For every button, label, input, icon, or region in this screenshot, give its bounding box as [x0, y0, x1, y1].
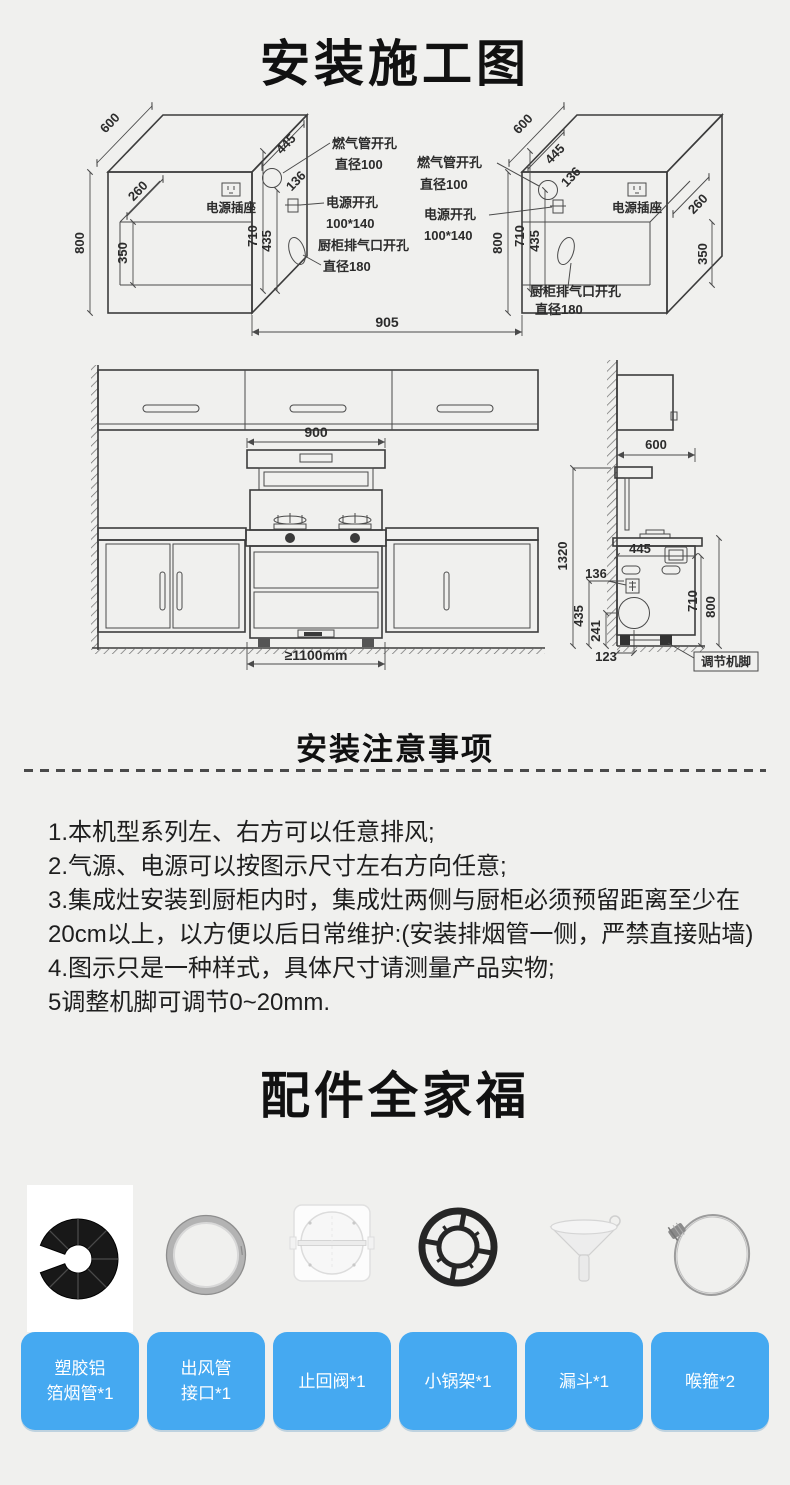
door-handle: [177, 572, 182, 610]
right-power-callout-2: 100*140: [424, 228, 472, 243]
side-upper-cabinet: [617, 375, 673, 430]
left-dim-435: 435: [259, 230, 274, 252]
check-valve-image: [273, 1185, 391, 1332]
side-dim-241: 241: [588, 620, 603, 642]
note-line-4: 20cm以上，以方便以后日常维护:(安装排烟管一侧，严禁直接贴墙): [48, 918, 760, 952]
side-burner: [640, 530, 670, 538]
right-dim-350: 350: [695, 243, 710, 265]
accessory-label-pot-rack: 小锅架*1: [399, 1332, 517, 1430]
accessory-label-funnel: 漏斗*1: [525, 1332, 643, 1430]
right-gas-callout-2: 直径100: [420, 177, 468, 192]
left-socket-icon: [222, 183, 240, 196]
right-exhaust-hole: [555, 235, 578, 266]
side-floor-hatch: [617, 646, 705, 652]
right-exhaust-callout-2: 直径180: [535, 302, 583, 317]
right-socket-icon: [628, 183, 646, 196]
pot-rack-image: [399, 1185, 517, 1332]
left-power-callout-1: 电源开孔: [326, 195, 378, 210]
right-gas-hole: [539, 181, 558, 200]
upper-cabinets: [98, 370, 538, 430]
side-dim-800: 800: [703, 596, 718, 618]
note-line-6: 5调整机脚可调节0~20mm.: [48, 986, 760, 1020]
min-width-value: ≥1100mm: [285, 647, 348, 663]
right-dim-260: 260: [685, 191, 711, 217]
right-dim-136: 136: [558, 164, 584, 190]
page-title: 安装施工图: [0, 24, 790, 96]
cabinet-handle: [143, 405, 199, 412]
cabinet-cutout-diagram: 600 800 260 350 710 435 445 136: [0, 95, 790, 345]
door-handle: [444, 572, 449, 610]
stove-foot: [258, 638, 270, 647]
right-cabinet-iso: 600 445 136 800 710 435 260 350: [417, 106, 722, 317]
right-gas-callout-1: 燃气管开孔: [417, 155, 482, 170]
accessory-label-line: 箔烟管*1: [46, 1381, 113, 1406]
side-exhaust-outlet: [619, 598, 650, 629]
adjustable-foot: [620, 635, 630, 645]
burner-right: [339, 513, 371, 529]
accessories-labels-row: 塑胶铝 箔烟管*1 出风管 接口*1 止回阀*1 小锅架*1 漏斗*1 喉箍*2: [0, 1332, 790, 1430]
side-dim-123: 123: [595, 649, 617, 664]
right-power-opening: [550, 200, 566, 213]
left-exhaust-hole: [286, 235, 309, 266]
front-elevation: 900: [91, 365, 545, 670]
control-knob: [350, 533, 360, 543]
right-power-callout-1: 电源开孔: [424, 207, 476, 222]
door-handle: [160, 572, 165, 610]
left-power-opening: [285, 199, 301, 212]
accessory-label-smoke-pipe: 塑胶铝 箔烟管*1: [21, 1332, 139, 1430]
side-dim-600: 600: [645, 437, 667, 452]
note-line-1: 1.本机型系列左、右方可以任意排风;: [48, 816, 760, 850]
left-gas-callout-1: 燃气管开孔: [332, 136, 397, 151]
control-knob: [285, 533, 295, 543]
left-gas-callout-2: 直径100: [335, 157, 383, 172]
left-dim-350: 350: [115, 242, 130, 264]
accessory-label-check-valve: 止回阀*1: [273, 1332, 391, 1430]
accessories-heading: 配件全家福: [0, 1056, 790, 1128]
note-line-3: 3.集成灶安装到厨柜内时，集成灶两侧与厨柜必须预留距离至少在: [48, 884, 760, 918]
smoke-pipe-image: [21, 1185, 139, 1332]
hose-clamp-image: [651, 1185, 769, 1332]
note-line-2: 2.气源、电源可以按图示尺寸左右方向任意;: [48, 850, 760, 884]
accessory-label-outlet-connector: 出风管 接口*1: [147, 1332, 265, 1430]
side-dim-710: 710: [685, 590, 700, 612]
foot-label-text: 调节机脚: [701, 654, 751, 669]
left-wall-hatch: [91, 365, 98, 650]
burner-left: [274, 513, 306, 529]
left-dim-260: 260: [125, 178, 151, 204]
left-dim-710: 710: [245, 225, 260, 247]
accessory-label-line: 止回阀*1: [298, 1369, 365, 1394]
base-cabinet-left: [98, 528, 246, 632]
accessory-label-line: 漏斗*1: [559, 1369, 609, 1394]
integrated-stove-front: [246, 450, 386, 647]
accessory-label-line: 接口*1: [181, 1381, 231, 1406]
right-exhaust-callout-1: 厨柜排气口开孔: [530, 284, 621, 299]
side-dim-445: 445: [629, 541, 651, 556]
stove-foot: [362, 638, 374, 647]
left-dim-800: 800: [72, 232, 87, 254]
cabinet-handle: [290, 405, 346, 412]
funnel-image: [525, 1185, 643, 1332]
dashed-divider: [24, 769, 766, 772]
right-dim-435: 435: [527, 230, 542, 252]
left-dim-445: 445: [273, 131, 299, 157]
side-hood: [615, 467, 652, 530]
accessory-label-line: 塑胶铝: [55, 1356, 106, 1381]
left-dim-136: 136: [283, 168, 309, 194]
right-dim-800: 800: [490, 232, 505, 254]
accessories-images-row: [0, 1185, 790, 1332]
accessory-label-hose-clamp: 喉箍*2: [651, 1332, 769, 1430]
accessory-label-line: 喉箍*2: [685, 1369, 735, 1394]
kitchen-elevation-diagram: 900: [0, 350, 790, 695]
right-dim-600: 600: [510, 111, 536, 137]
right-dim-445: 445: [542, 141, 568, 167]
niche-width-value: 905: [375, 314, 399, 330]
gas-inlet-block: [626, 579, 639, 593]
left-socket-label: 电源插座: [206, 200, 257, 215]
left-dim-600: 600: [97, 110, 123, 136]
left-cabinet-iso: 600 800 260 350 710 435 445 136: [72, 106, 409, 313]
right-socket-label: 电源插座: [612, 200, 663, 215]
side-dim-435: 435: [571, 605, 586, 627]
base-cabinet-right: [386, 528, 538, 632]
note-line-5: 4.图示只是一种样式，具体尺寸请测量产品实物;: [48, 952, 760, 986]
notes-section: 1.本机型系列左、右方可以任意排风; 2.气源、电源可以按图示尺寸左右方向任意;…: [48, 816, 760, 1020]
adjustable-foot: [660, 635, 672, 645]
outlet-pipe-connector-image: [147, 1185, 265, 1332]
side-dim-136: 136: [585, 566, 607, 581]
accessory-label-line: 小锅架*1: [424, 1369, 491, 1394]
niche-width-dim: 905: [252, 314, 522, 336]
notes-heading: 安装注意事项: [0, 724, 790, 769]
right-dim-710: 710: [512, 225, 527, 247]
side-wall-hatch: [607, 360, 617, 646]
left-power-callout-2: 100*140: [326, 216, 374, 231]
stove-width-dim: 900: [247, 424, 385, 448]
cabinet-handle: [437, 405, 493, 412]
side-elevation: 600 1320: [555, 360, 758, 671]
stove-width-value: 900: [304, 424, 328, 440]
left-gas-hole: [263, 169, 282, 188]
left-exhaust-callout-1: 厨柜排气口开孔: [318, 238, 409, 253]
left-exhaust-callout-2: 直径180: [323, 259, 371, 274]
product-install-page: 安装施工图 600 800: [0, 0, 790, 1485]
accessory-label-line: 出风管: [181, 1356, 232, 1381]
side-dim-1320: 1320: [555, 542, 570, 571]
